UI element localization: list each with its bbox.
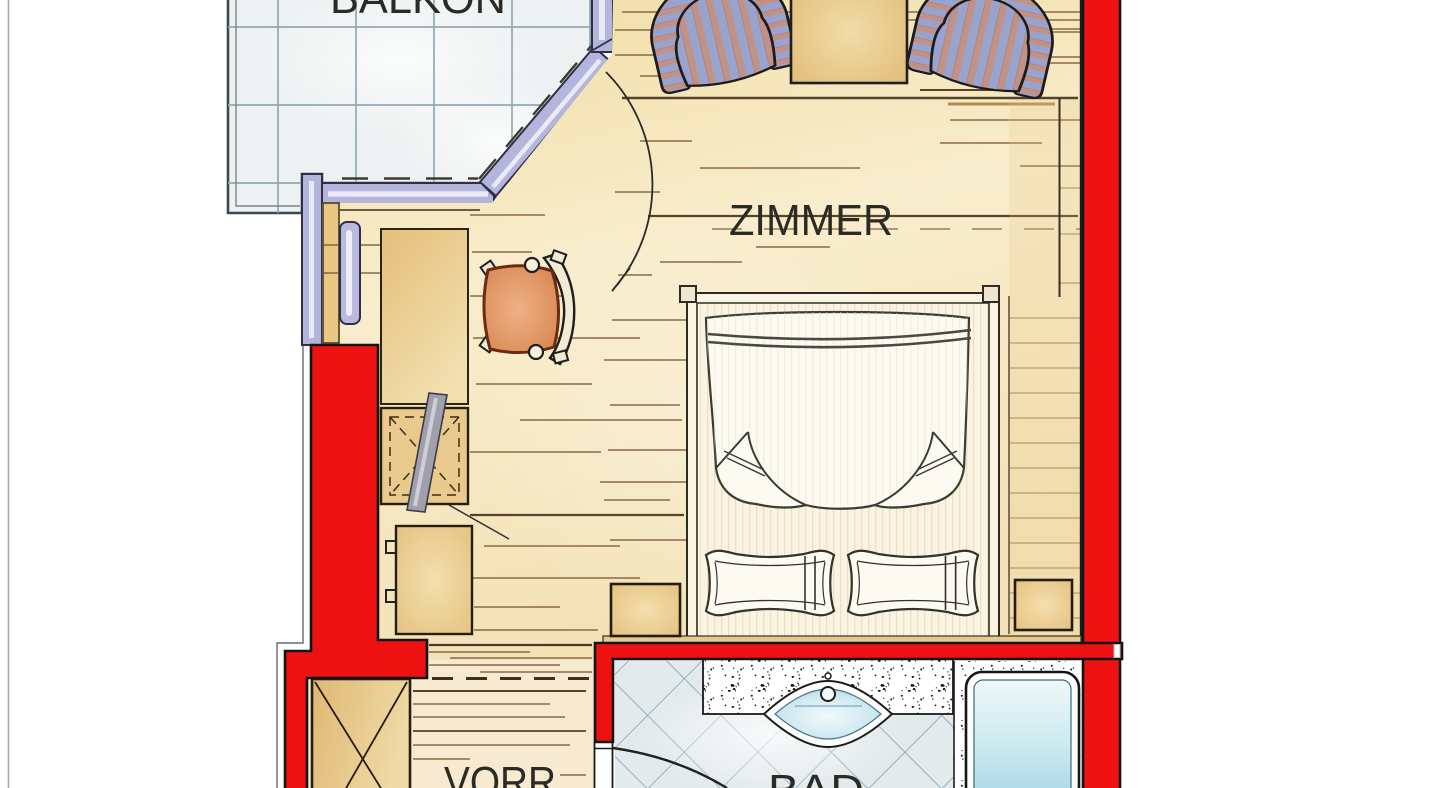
svg-text:ZIMMER: ZIMMER xyxy=(729,196,893,245)
svg-text:BAD: BAD xyxy=(768,766,864,788)
svg-text:VORR: VORR xyxy=(444,758,556,788)
svg-text:BALKON: BALKON xyxy=(330,0,506,23)
